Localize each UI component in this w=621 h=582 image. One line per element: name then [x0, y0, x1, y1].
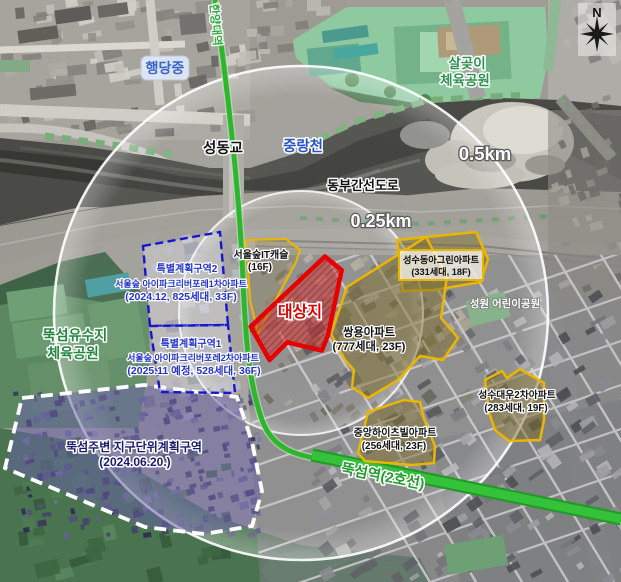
- svg-text:특별계획구역1: 특별계획구역1: [161, 337, 222, 350]
- svg-text:성동교: 성동교: [203, 139, 243, 157]
- svg-text:(2025.11 예정, 528세대, 36F): (2025.11 예정, 528세대, 36F): [127, 364, 260, 377]
- svg-text:(2024.06.20.): (2024.06.20.): [99, 455, 170, 469]
- svg-text:성수동아그린아파트: 성수동아그린아파트: [403, 254, 480, 265]
- svg-text:체육공원: 체육공원: [47, 345, 99, 361]
- svg-text:중랑천: 중랑천: [283, 137, 323, 155]
- svg-text:동부간선도로: 동부간선도로: [327, 178, 399, 193]
- svg-text:특별계획구역2: 특별계획구역2: [157, 262, 218, 275]
- svg-text:0.5km: 0.5km: [459, 143, 511, 164]
- svg-text:(283세대, 19F): (283세대, 19F): [484, 401, 547, 414]
- svg-text:(256세대, 23F): (256세대, 23F): [362, 439, 427, 452]
- svg-text:성수대우2차아파트: 성수대우2차아파트: [478, 388, 556, 401]
- svg-text:서울숲 아이파크리버포레2차아파트: 서울숲 아이파크리버포레2차아파트: [127, 352, 259, 363]
- svg-text:살곶이: 살곶이: [448, 55, 485, 71]
- svg-text:쌍용아파트: 쌍용아파트: [343, 325, 396, 339]
- svg-text:뚝섬유수지: 뚝섬유수지: [43, 327, 107, 343]
- svg-text:중앙하이츠빌아파트: 중앙하이츠빌아파트: [354, 426, 437, 439]
- svg-text:뚝섬주변 지구단위계획구역: 뚝섬주변 지구단위계획구역: [66, 439, 202, 454]
- svg-text:행당중: 행당중: [146, 60, 185, 76]
- svg-text:(777세대, 23F): (777세대, 23F): [333, 339, 406, 353]
- svg-text:(16F): (16F): [248, 262, 272, 273]
- svg-text:(2024.12, 825세대, 33F): (2024.12, 825세대, 33F): [125, 290, 237, 303]
- svg-text:성원 어린이공원: 성원 어린이공원: [470, 297, 541, 310]
- svg-text:서울숲 아이파크리버포레1차아파트: 서울숲 아이파크리버포레1차아파트: [115, 278, 247, 289]
- svg-text:(331세대, 18F): (331세대, 18F): [411, 266, 470, 277]
- svg-text:0.25km: 0.25km: [350, 211, 411, 231]
- svg-text:대상지: 대상지: [278, 303, 322, 321]
- svg-text:체육공원: 체육공원: [440, 73, 490, 88]
- svg-text:서울숲IT캐슬: 서울숲IT캐슬: [234, 248, 289, 261]
